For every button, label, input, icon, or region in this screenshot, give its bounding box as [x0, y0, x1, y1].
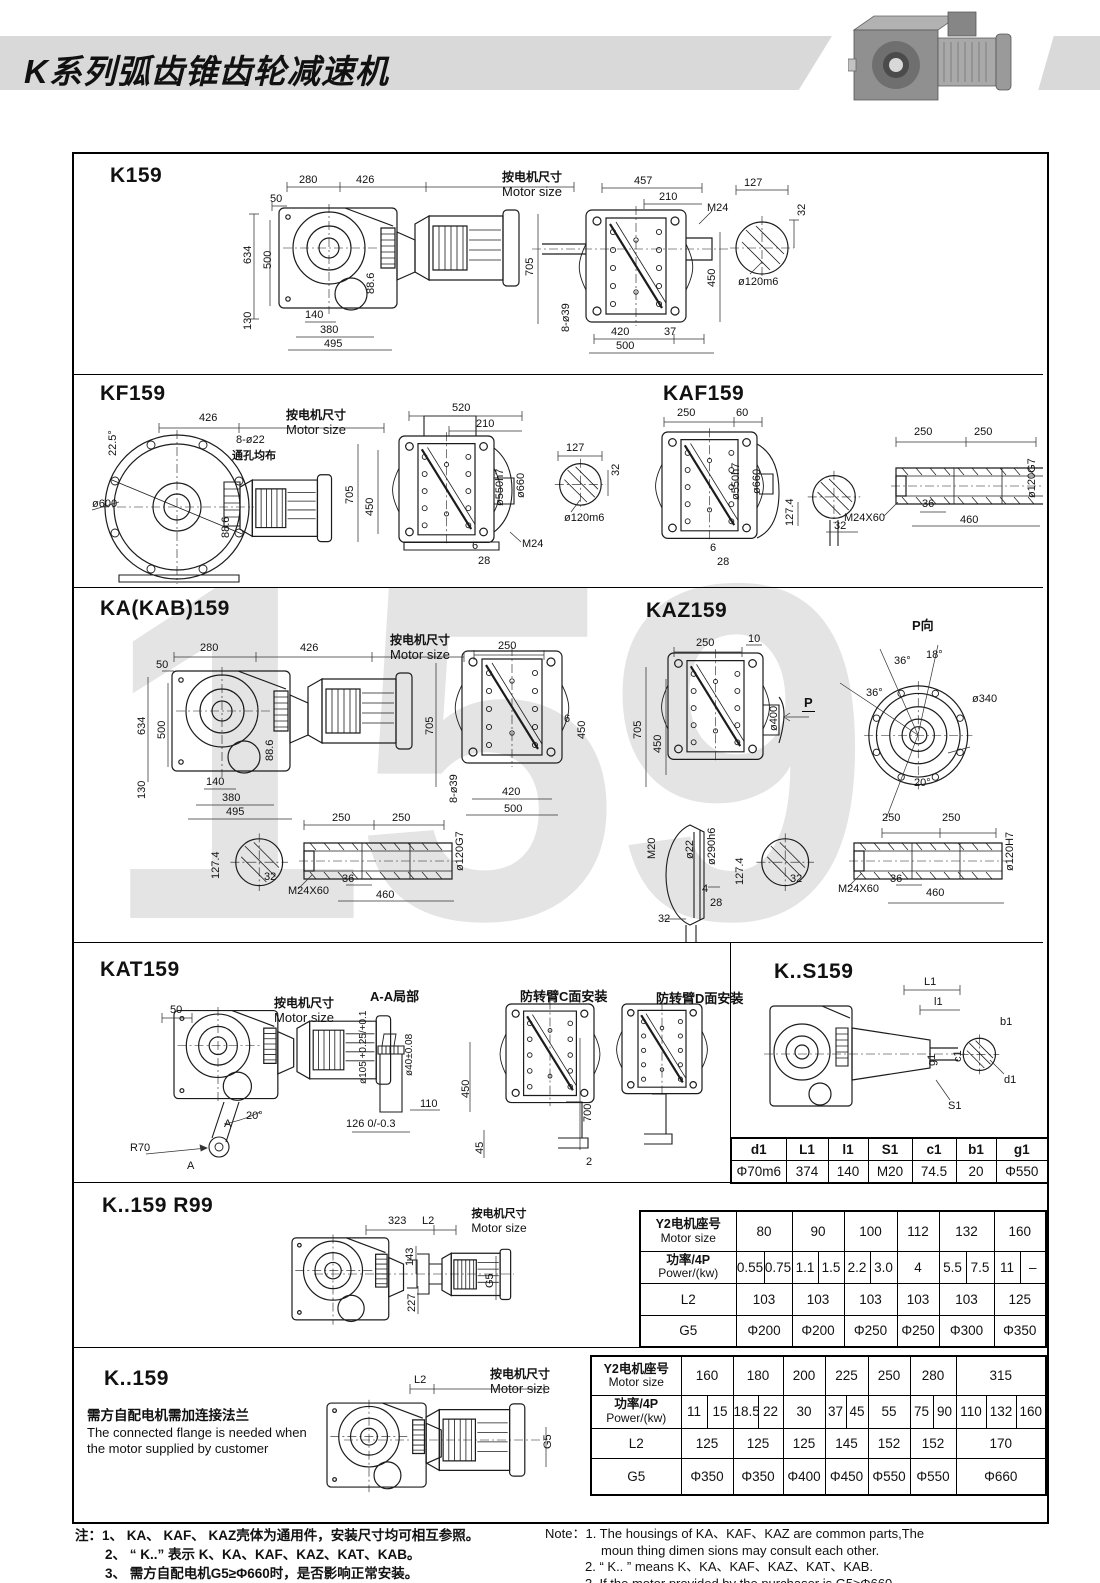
dim-label: 700 — [582, 1104, 594, 1122]
table-cell: 125 — [681, 1428, 733, 1458]
dim-label: 450 — [460, 1080, 472, 1098]
table-cell: 100 — [844, 1211, 897, 1251]
dim-label: 36° — [866, 687, 883, 699]
table-cell: 30 — [783, 1395, 825, 1428]
dim-label: 450 — [652, 735, 664, 753]
table-cell: 250 — [868, 1356, 910, 1395]
motor-size-label: 按电机尺寸 Motor size — [370, 633, 470, 663]
dim-label: 380 — [320, 324, 338, 336]
dim-label: ø290h6 — [706, 828, 718, 865]
table-cell: 374 — [786, 1160, 828, 1183]
dim-label: 32 — [610, 464, 622, 476]
dim-label: 127.4 — [734, 857, 746, 885]
table-cell: 22 — [758, 1395, 783, 1428]
motor-size-label: 按电机尺寸 Motor size — [470, 1367, 570, 1397]
table-cell: Φ350 — [994, 1315, 1046, 1347]
row-label: Y2电机座号 Motor size — [640, 1211, 736, 1251]
dim-label: ø660 — [751, 469, 763, 494]
dim-label: A — [224, 1118, 231, 1130]
motor-size-label: 按电机尺寸 Motor size — [454, 1208, 544, 1236]
dim-label: 500 — [262, 251, 274, 269]
dim-label: 10 — [748, 633, 760, 645]
table-cell: L1 — [786, 1138, 828, 1160]
aa-detail-title: A-A局部 — [370, 986, 419, 1005]
table-cell: 90 — [933, 1395, 956, 1428]
table-cell: 1.5 — [818, 1251, 844, 1283]
section-title-ka159: KA(KAB)159 — [100, 597, 230, 621]
dim-label: 8-ø22 — [236, 434, 265, 446]
motor-size-label: 按电机尺寸 Motor size — [482, 170, 582, 200]
dim-label: 88.6 — [264, 740, 276, 761]
dim-label: 88.6 — [365, 273, 377, 294]
dim-label: 250 — [942, 812, 960, 824]
dim-label: 500 — [156, 721, 168, 739]
dim-label: R70 — [130, 1142, 150, 1154]
dim-label: 20° — [914, 777, 931, 789]
dim-label: 28 — [478, 555, 490, 567]
dim-label: 323 — [388, 1215, 406, 1227]
dim-label: l1 — [934, 996, 943, 1008]
dim-label: 426 — [199, 412, 217, 424]
dim-label: 通孔均布 — [232, 447, 276, 463]
dim-label: A — [187, 1160, 194, 1172]
table-cell: 180 — [733, 1356, 783, 1395]
dim-label: ø120m6 — [738, 276, 778, 288]
table-cell: 315 — [956, 1356, 1046, 1395]
dim-label: 495 — [324, 338, 342, 350]
dim-label: 420 — [502, 786, 520, 798]
table-cell: Φ450 — [825, 1458, 868, 1495]
dim-label: 280 — [200, 642, 218, 654]
dim-label: 36 — [890, 873, 902, 885]
table-cell: Φ550 — [868, 1458, 910, 1495]
dim-label: 140 — [305, 309, 323, 321]
section-title-k159: K159 — [110, 164, 162, 188]
d-face-title: 防转臂D面安装 — [656, 988, 743, 1007]
section-title-kaz159: KAZ159 — [646, 599, 727, 623]
table-cell: 103 — [939, 1283, 994, 1315]
section-kat159-ks159: KAT159 按电机尺寸 Motor size 50 20° R70 A A A… — [74, 942, 1043, 1183]
dim-label: 32 — [264, 871, 276, 883]
dim-label: 28 — [710, 897, 722, 909]
section-ka159-kaz159: KA(KAB)159 KAZ159 按电机尺寸 Motor size 280 4… — [74, 587, 1043, 943]
dim-label: 280 — [299, 174, 317, 186]
dim-label: M24X60 — [844, 512, 885, 524]
catalog-page: K系列弧齿锥齿轮减速机 159 K159 按电机尺寸 — [0, 0, 1100, 1583]
page-title: K系列弧齿锥齿轮减速机 — [24, 45, 389, 93]
p-direction-label: P — [802, 695, 815, 712]
dim-label: 520 — [452, 402, 470, 414]
dim-label: 36 — [922, 498, 934, 510]
dim-label: G5 — [484, 1273, 496, 1288]
row-label: 功率/4P Power/(kw) — [640, 1251, 736, 1283]
table-cell: 152 — [910, 1428, 956, 1458]
table-cell: 5.5 — [939, 1251, 966, 1283]
dim-label: 460 — [376, 889, 394, 901]
table-cell: 45 — [846, 1395, 868, 1428]
dim-label: 143 — [404, 1248, 416, 1266]
dim-label: 45 — [474, 1142, 486, 1154]
flange-note: 需方自配电机需加连接法兰 The connected flange is nee… — [87, 1407, 307, 1458]
dim-label: ø340 — [972, 693, 997, 705]
table-cell: 90 — [792, 1211, 844, 1251]
dim-label: M20 — [646, 838, 658, 859]
dim-label: G5 — [542, 1434, 554, 1449]
table-cell: 132 — [986, 1395, 1016, 1428]
section-r99: K..159 R99 按电机尺寸 Motor size 323 L2 143 2… — [74, 1182, 1043, 1348]
table-cell: Φ200 — [792, 1315, 844, 1347]
dim-label: 32 — [790, 873, 802, 885]
dim-label: 6 — [710, 542, 716, 554]
dim-label: ø120G7 — [454, 831, 466, 871]
dim-label: 250 — [974, 426, 992, 438]
section-title-kf159: KF159 — [100, 382, 166, 406]
table-cell: Φ400 — [783, 1458, 825, 1495]
dim-label: 127 — [744, 177, 762, 189]
row-label: G5 — [640, 1315, 736, 1347]
row-label: 功率/4P Power/(kw) — [591, 1395, 681, 1428]
table-cell: 200 — [783, 1356, 825, 1395]
table-cell: 125 — [783, 1428, 825, 1458]
notes-english: Note：1. The housings of KA、KAF、KAZ are c… — [545, 1526, 1090, 1583]
table-cell: M20 — [868, 1160, 912, 1183]
section-title-r99: K..159 R99 — [102, 1194, 213, 1218]
row-label: L2 — [640, 1283, 736, 1315]
table-cell: – — [1020, 1251, 1046, 1283]
section-k159: K159 按电机尺寸 Motor size 280 426 50 634 500… — [74, 154, 1043, 375]
motor-size-label: 按电机尺寸 Motor size — [266, 408, 366, 438]
table-cell: 152 — [868, 1428, 910, 1458]
table-cell: 140 — [828, 1160, 868, 1183]
dim-label: M24X60 — [288, 885, 329, 897]
table-cell: 170 — [956, 1428, 1046, 1458]
row-label: Y2电机座号 Motor size — [591, 1356, 681, 1395]
table-cell: Φ660 — [956, 1458, 1046, 1495]
dim-label: 8-ø39 — [560, 303, 572, 332]
dim-label: 460 — [960, 514, 978, 526]
dim-label: 495 — [226, 806, 244, 818]
table-cell: 75 — [910, 1395, 933, 1428]
dim-label: 250 — [677, 407, 695, 419]
dim-label: 460 — [926, 887, 944, 899]
table-cell: 11 — [681, 1395, 707, 1428]
dim-label: c1 — [952, 1050, 964, 1062]
dim-label: 88.6 — [220, 517, 232, 538]
dim-label: S1 — [948, 1100, 961, 1112]
table-cell: Φ350 — [733, 1458, 783, 1495]
table-cell: 280 — [910, 1356, 956, 1395]
motor-table-1: Y2电机座号 Motor size 80 90 100 112 132 160 … — [639, 1210, 1047, 1348]
table-cell: Φ200 — [736, 1315, 792, 1347]
p-view-title: P向 — [912, 615, 934, 634]
dim-label: 127.4 — [784, 498, 796, 526]
dim-label: 60 — [736, 407, 748, 419]
dim-label: 36 — [342, 873, 354, 885]
dim-label: 6 — [564, 713, 570, 725]
dim-label: 140 — [206, 776, 224, 788]
dim-label: 210 — [476, 418, 494, 430]
dim-label: 4 — [702, 883, 708, 895]
dim-label: 705 — [632, 721, 644, 739]
header-band-right — [1038, 36, 1100, 90]
table-cell: 1.1 — [792, 1251, 818, 1283]
dim-label: 127 — [566, 442, 584, 454]
dim-label: ø120m6 — [564, 512, 604, 524]
dim-label: 18° — [926, 649, 943, 661]
table-cell: 74.5 — [912, 1160, 956, 1183]
dim-label: 20° — [246, 1110, 263, 1122]
dim-label: 500 — [616, 340, 634, 352]
table-cell: 3.0 — [870, 1251, 897, 1283]
dim-label: M24 — [522, 538, 543, 550]
table-cell: Φ300 — [939, 1315, 994, 1347]
dim-label: L1 — [924, 976, 936, 988]
dim-label: 705 — [424, 717, 436, 735]
dim-label: 50 — [170, 1004, 182, 1016]
ks159-dim-table: d1 L1 l1 S1 c1 b1 g1 Φ70m6 374 140 M20 7… — [730, 1137, 1049, 1184]
dim-label: ø550h7 — [730, 463, 742, 500]
table-cell: Φ350 — [681, 1458, 733, 1495]
table-cell: 125 — [733, 1428, 783, 1458]
table-cell: 125 — [994, 1283, 1046, 1315]
dim-label: 50 — [270, 193, 282, 205]
table-cell: 160 — [994, 1211, 1046, 1251]
table-cell: 15 — [707, 1395, 733, 1428]
section-k159b: K..159 需方自配电机需加连接法兰 The connected flange… — [74, 1347, 1043, 1522]
dim-label: d1 — [1004, 1074, 1016, 1086]
table-cell: 110 — [956, 1395, 986, 1428]
dim-label: 457 — [634, 175, 652, 187]
dim-label: 500 — [504, 803, 522, 815]
c-face-title: 防转臂C面安装 — [520, 986, 607, 1005]
table-cell: 132 — [939, 1211, 994, 1251]
dim-label: 250 — [332, 812, 350, 824]
dim-label: ø400 — [768, 706, 780, 731]
motor-size-label: 按电机尺寸 Motor size — [254, 996, 354, 1026]
notes-chinese: 注：1、 KA、 KAF、 KAZ壳体为通用件，安装尺寸均可相互参照。 2、 “… — [75, 1526, 545, 1583]
dim-label: 6 — [472, 540, 478, 552]
kf159-kaf159-drawing — [74, 374, 1043, 587]
table-cell: g1 — [996, 1138, 1048, 1160]
dim-label: 22.5° — [107, 430, 119, 456]
table-cell: d1 — [731, 1138, 786, 1160]
dim-label: ø105 +0.25/+0.1 — [358, 1011, 369, 1084]
table-cell: b1 — [956, 1138, 996, 1160]
dim-label: 420 — [611, 326, 629, 338]
dim-label: 227 — [406, 1294, 418, 1312]
table-cell: c1 — [912, 1138, 956, 1160]
dim-label: 450 — [364, 498, 376, 516]
table-cell: Φ250 — [844, 1315, 897, 1347]
table-cell: 112 — [897, 1211, 939, 1251]
dim-label: ø120G7 — [1026, 458, 1038, 498]
dim-label: 32 — [658, 913, 670, 925]
dim-label: 130 — [136, 781, 148, 799]
dim-label: 426 — [300, 642, 318, 654]
table-cell: 80 — [736, 1211, 792, 1251]
table-cell: 20 — [956, 1160, 996, 1183]
table-cell: 160 — [681, 1356, 733, 1395]
dim-label: 110 — [420, 1098, 438, 1110]
section-title-ks159: K..S159 — [774, 960, 853, 984]
table-cell: 160 — [1016, 1395, 1046, 1428]
motor-table-2: Y2电机座号 Motor size 160 180 200 225 250 28… — [590, 1355, 1047, 1496]
table-cell: 225 — [825, 1356, 868, 1395]
row-label: L2 — [591, 1428, 681, 1458]
table-cell: Φ70m6 — [731, 1160, 786, 1183]
dim-label: ø550h7 — [494, 469, 506, 506]
dim-label: L2 — [414, 1374, 426, 1386]
dim-label: 250 — [914, 426, 932, 438]
table-cell: 7.5 — [966, 1251, 994, 1283]
table-cell: Φ550 — [910, 1458, 956, 1495]
table-cell: 55 — [868, 1395, 910, 1428]
table-cell: l1 — [828, 1138, 868, 1160]
dim-label: 426 — [356, 174, 374, 186]
dim-label: 210 — [659, 191, 677, 203]
dim-label: 130 — [242, 312, 254, 330]
section-kf159-kaf159: KF159 KAF159 按电机尺寸 Motor size 426 22.5° … — [74, 374, 1043, 588]
dim-label: 50 — [156, 659, 168, 671]
section-title-k159b: K..159 — [104, 1367, 169, 1391]
dim-label: 705 — [524, 258, 536, 276]
dim-label: 8-ø39 — [448, 774, 460, 803]
dim-label: ø660 — [515, 473, 527, 498]
section-title-kaf159: KAF159 — [663, 382, 744, 406]
dim-label: 127.4 — [210, 851, 222, 879]
ka159-kaz159-drawing — [74, 587, 1043, 942]
dim-label: 380 — [222, 792, 240, 804]
dim-label: 450 — [706, 269, 718, 287]
dim-label: 634 — [136, 717, 148, 735]
section-title-kat159: KAT159 — [100, 958, 180, 982]
dim-label: 634 — [242, 246, 254, 264]
table-cell: 37 — [825, 1395, 846, 1428]
gearbox-product-image — [848, 4, 1023, 108]
table-cell: Φ250 — [897, 1315, 939, 1347]
dim-label: 126 0/-0.3 — [346, 1118, 396, 1130]
table-cell: 18.5 — [733, 1395, 758, 1428]
dim-label: 250 — [882, 812, 900, 824]
dim-label: M24X60 — [838, 883, 879, 895]
table-cell: 103 — [792, 1283, 844, 1315]
dim-label: 32 — [796, 204, 808, 216]
dim-label: L2 — [422, 1215, 434, 1227]
dim-label: 36° — [894, 655, 911, 667]
dim-label: 28 — [717, 556, 729, 568]
dim-label: 250 — [498, 640, 516, 652]
table-cell: 0.75 — [764, 1251, 792, 1283]
drawing-board: 159 K159 按电机尺寸 Motor size 280 426 50 634… — [72, 152, 1049, 1524]
table-cell: 0.55 — [736, 1251, 764, 1283]
dim-label: 2 — [586, 1156, 592, 1168]
table-cell: 4 — [897, 1251, 939, 1283]
table-cell: 145 — [825, 1428, 868, 1458]
dim-label: 450 — [576, 721, 588, 739]
dim-label: M24 — [707, 202, 728, 214]
dim-label: g1 — [926, 1054, 938, 1066]
dim-label: b1 — [1000, 1016, 1012, 1028]
table-cell: 103 — [897, 1283, 939, 1315]
dim-label: ø120H7 — [1004, 832, 1016, 871]
dim-label: 37 — [664, 326, 676, 338]
table-cell: Φ550 — [996, 1160, 1048, 1183]
dim-label: ø40±0.08 — [404, 1034, 415, 1076]
dim-label: 250 — [392, 812, 410, 824]
row-label: G5 — [591, 1458, 681, 1495]
table-cell: 11 — [994, 1251, 1020, 1283]
table-cell: 103 — [844, 1283, 897, 1315]
dim-label: ø600 — [92, 498, 117, 510]
table-cell: 2.2 — [844, 1251, 870, 1283]
dim-label: 705 — [344, 486, 356, 504]
table-cell: 103 — [736, 1283, 792, 1315]
dim-label: 250 — [696, 637, 714, 649]
table-cell: S1 — [868, 1138, 912, 1160]
dim-label: ø22 — [684, 840, 696, 859]
